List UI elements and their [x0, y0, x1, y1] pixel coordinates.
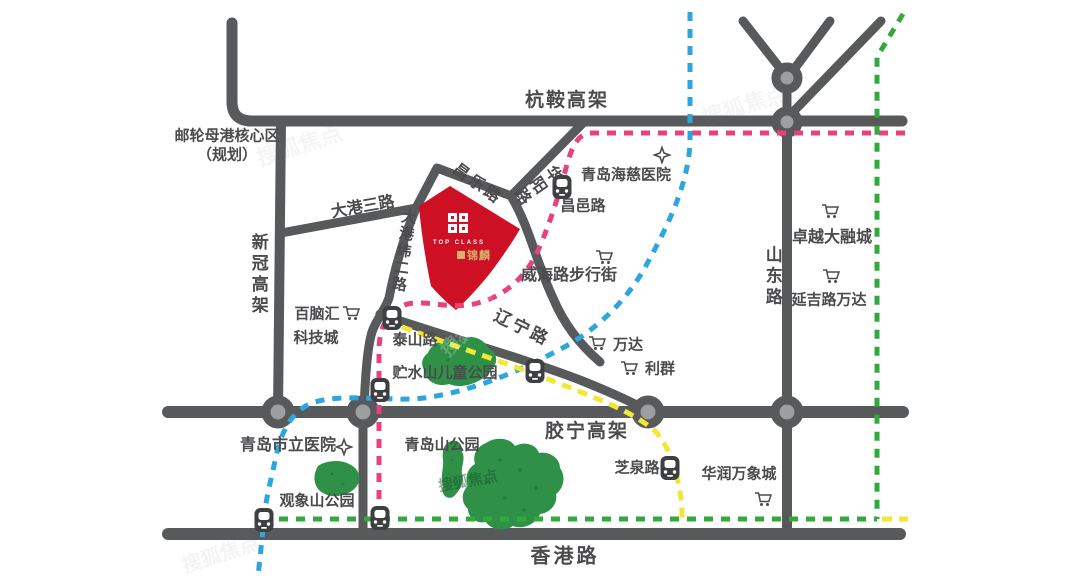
- road-xinguan-viaduct: [278, 121, 281, 412]
- roundabout: [776, 111, 798, 133]
- map-graphics: [0, 0, 1074, 576]
- location-map: 邮轮母港核心区 （规划） 杭鞍高架 新冠高架 大港三路 大港纬二路 昌乐路 华阳…: [0, 0, 1074, 576]
- roundabout: [775, 400, 799, 424]
- label-haici-hospital: 青岛海慈医院: [581, 166, 671, 183]
- label-guanxiangshan-park: 观象山公园: [279, 492, 354, 509]
- roundabout: [266, 400, 290, 424]
- label-bainaohui-line1: 百脑汇: [294, 305, 339, 322]
- metro-station-icon: [526, 359, 545, 383]
- label-cruise-port-line2: （规划）: [197, 146, 257, 163]
- label-road-xinguan: 新冠高架: [248, 233, 268, 317]
- metro-station-icon-zhiquan: [661, 456, 680, 480]
- project-logo-caption: TOP CLASS: [433, 240, 485, 246]
- label-qingdaoshan-park: 青岛山公园: [404, 436, 479, 453]
- cart-icon-bainaohui: [343, 307, 359, 320]
- label-road-hangan: 杭鞍高架: [525, 90, 609, 112]
- label-zhushuishan-park: 贮水山儿童公园: [392, 364, 497, 381]
- hospital-star-icon-shili: [337, 440, 352, 455]
- road-northeast-branch-right: [792, 21, 830, 72]
- label-changyi-station: 昌邑路: [560, 197, 605, 214]
- road-northeast-diagonal: [793, 21, 881, 112]
- metro-station-icon-taishan: [383, 306, 402, 330]
- transit-line-green-vertical: [877, 14, 903, 519]
- metro-station-icon: [371, 378, 390, 402]
- project-name-badge: 锦麟: [457, 247, 491, 263]
- project-badge-square: [457, 251, 465, 259]
- label-yanji-wanda: 延吉路万达: [791, 291, 866, 308]
- label-zhiquan-station: 芝泉路: [614, 459, 659, 476]
- label-mixc: 华润万象城: [701, 465, 776, 482]
- road-top-left-feeder: [232, 23, 252, 121]
- label-road-xianggang: 香港路: [531, 546, 600, 569]
- label-wanda: 万达: [613, 336, 643, 353]
- roundabout: [776, 67, 798, 89]
- label-bainaohui-line2: 科技城: [293, 329, 338, 346]
- project-name-text: 锦麟: [467, 247, 491, 263]
- hospital-star-icon-haici: [655, 148, 670, 163]
- label-liqun: 利群: [645, 360, 675, 377]
- label-weihai-street: 威海路步行街: [521, 267, 617, 285]
- metro-station-icon: [255, 508, 274, 532]
- label-road-jiaoning: 胶宁高架: [545, 421, 629, 443]
- cart-icon-zhuoyue: [822, 205, 838, 218]
- metro-station-icon: [371, 506, 390, 530]
- road-northeast-branch-left: [743, 21, 783, 72]
- label-shili-hospital: 青岛市立医院: [240, 437, 336, 455]
- cart-icon-mixc: [755, 493, 771, 506]
- label-road-shandong: 山东路: [762, 246, 782, 309]
- park-guanxiangshan-shape: [314, 461, 359, 496]
- roundabout: [351, 400, 375, 424]
- cart-icon-weihai: [596, 251, 612, 264]
- label-zhuoyue-mall: 卓越大融城: [792, 229, 872, 247]
- label-taishan-station: 泰山路: [392, 331, 437, 348]
- cart-icon-yanji-wanda: [823, 270, 839, 283]
- label-cruise-port-line1: 邮轮母港核心区: [174, 127, 279, 144]
- cart-icon-liqun: [621, 362, 637, 375]
